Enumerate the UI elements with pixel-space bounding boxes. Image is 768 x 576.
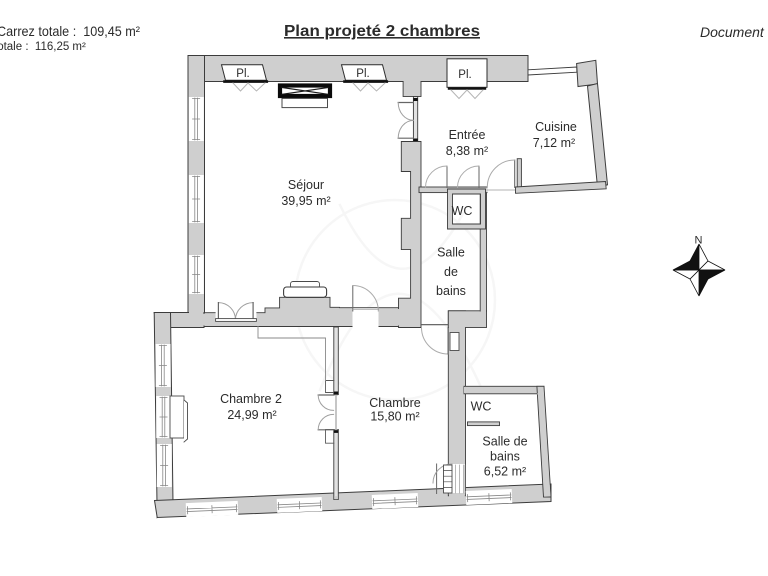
svg-text:Pl.: Pl. bbox=[458, 69, 471, 81]
svg-text:Carrez totale : 109,45 m²: Carrez totale : 109,45 m² bbox=[0, 23, 140, 39]
svg-text:39,95 m²: 39,95 m² bbox=[281, 194, 330, 208]
svg-text:8,38 m²: 8,38 m² bbox=[446, 144, 488, 158]
svg-text:Salle de: Salle de bbox=[482, 435, 527, 449]
svg-text:de: de bbox=[444, 265, 458, 279]
svg-text:Cuisine: Cuisine bbox=[535, 120, 577, 134]
svg-text:bains: bains bbox=[490, 450, 520, 464]
svg-text:totale : 116,25 m²: totale : 116,25 m² bbox=[0, 41, 86, 53]
svg-text:Entrée: Entrée bbox=[449, 128, 486, 142]
svg-text:24,99 m²: 24,99 m² bbox=[227, 408, 276, 422]
svg-text:Document n: Document n bbox=[700, 24, 768, 40]
svg-text:WC: WC bbox=[452, 204, 473, 218]
svg-text:Chambre: Chambre bbox=[369, 396, 420, 410]
svg-text:WC: WC bbox=[471, 400, 492, 414]
svg-text:Pl.: Pl. bbox=[236, 68, 249, 80]
svg-text:Salle: Salle bbox=[437, 246, 465, 260]
svg-text:15,80 m²: 15,80 m² bbox=[370, 410, 419, 424]
svg-text:Séjour: Séjour bbox=[288, 178, 324, 192]
svg-text:bains: bains bbox=[436, 284, 466, 298]
svg-text:Pl.: Pl. bbox=[356, 68, 369, 80]
svg-text:N: N bbox=[695, 235, 703, 247]
svg-text:7,12 m²: 7,12 m² bbox=[533, 136, 575, 150]
svg-text:6,52 m²: 6,52 m² bbox=[484, 465, 526, 479]
svg-text:Chambre 2: Chambre 2 bbox=[220, 392, 282, 406]
svg-text:Plan projeté 2 chambres: Plan projeté 2 chambres bbox=[284, 23, 480, 40]
